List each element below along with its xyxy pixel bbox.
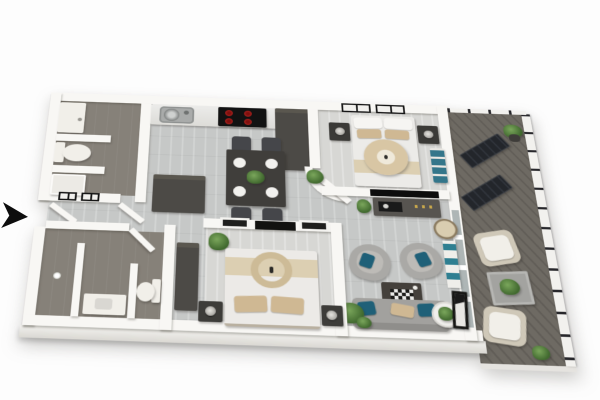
bedroom2-pillow-2 bbox=[271, 296, 304, 315]
bathroom2-sink bbox=[94, 298, 112, 310]
bedroom2-lamp-right bbox=[326, 310, 337, 320]
bedroom2-window-1 bbox=[220, 217, 250, 229]
burner-2 bbox=[244, 111, 252, 117]
bedroom2-decor-tassel bbox=[270, 267, 274, 274]
leaning-mirror bbox=[452, 291, 469, 330]
burner-3 bbox=[225, 118, 233, 124]
bedroom1-window-1 bbox=[341, 103, 371, 113]
bedroom1-ottoman-dot bbox=[384, 155, 388, 159]
bedroom1-pillow-white-1 bbox=[353, 117, 383, 128]
hall-closet-block bbox=[151, 174, 205, 213]
bedroom1-pillow-white-2 bbox=[384, 118, 413, 131]
bedroom1-pillow-tan-2 bbox=[385, 129, 410, 140]
kitchen-faucet bbox=[184, 110, 189, 114]
plate-4 bbox=[266, 187, 279, 198]
bedroom2-wall-console bbox=[255, 221, 296, 231]
plate-2 bbox=[265, 159, 278, 170]
apartment-plan bbox=[8, 92, 588, 376]
coffee-table-cup bbox=[413, 286, 418, 290]
bedroom2-pillow-1 bbox=[234, 296, 268, 313]
bedroom1-lamp-right bbox=[423, 130, 433, 138]
burner-4 bbox=[244, 119, 252, 125]
bedroom2-lamp-left bbox=[205, 306, 216, 316]
bedroom1-window-2 bbox=[375, 104, 405, 114]
console-dot bbox=[383, 204, 389, 209]
bedroom1-pillow-tan-1 bbox=[357, 129, 382, 138]
dining-centerpiece-plant bbox=[247, 170, 265, 184]
bedroom1-lamp-left bbox=[335, 127, 345, 135]
entry-window-symbol-2 bbox=[81, 193, 100, 202]
entry-window-symbol-1 bbox=[58, 192, 77, 201]
bedroom2-wardrobe bbox=[174, 242, 199, 311]
balcony-plant-top-pot bbox=[508, 134, 521, 142]
floor-plan-render bbox=[0, 0, 600, 400]
bathroom1-vanity bbox=[57, 102, 86, 133]
plate-1 bbox=[233, 157, 245, 168]
burner-1 bbox=[225, 110, 233, 116]
living-plant-2 bbox=[357, 317, 372, 329]
console-record-player bbox=[378, 201, 403, 212]
balcony-armchair-2-cushion bbox=[489, 311, 521, 342]
plate-3 bbox=[233, 186, 246, 197]
bedroom2-window-2 bbox=[299, 220, 329, 232]
